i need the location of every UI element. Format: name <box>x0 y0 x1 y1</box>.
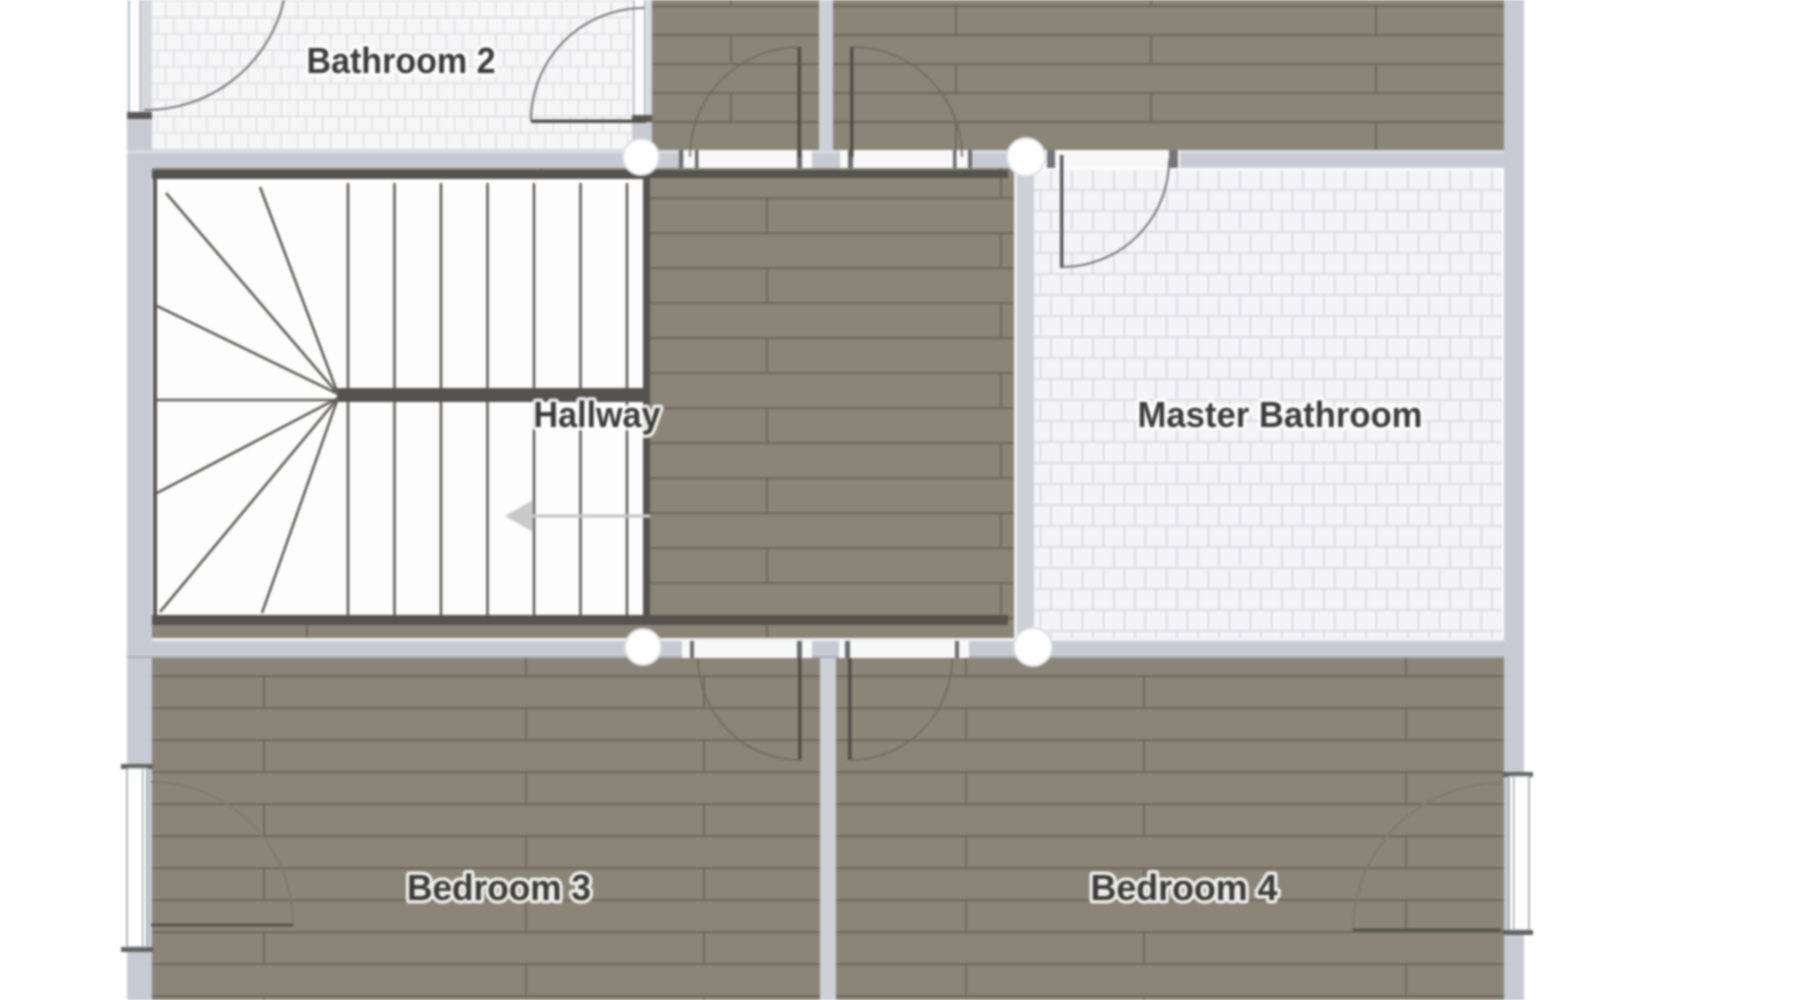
svg-text:Bedroom 4: Bedroom 4 <box>1091 867 1278 908</box>
svg-text:Bathroom 2: Bathroom 2 <box>307 40 496 81</box>
svg-text:Bedroom 3: Bedroom 3 <box>407 867 591 908</box>
svg-text:Hallway: Hallway <box>534 394 661 435</box>
svg-text:Master Bathroom: Master Bathroom <box>1138 394 1423 435</box>
